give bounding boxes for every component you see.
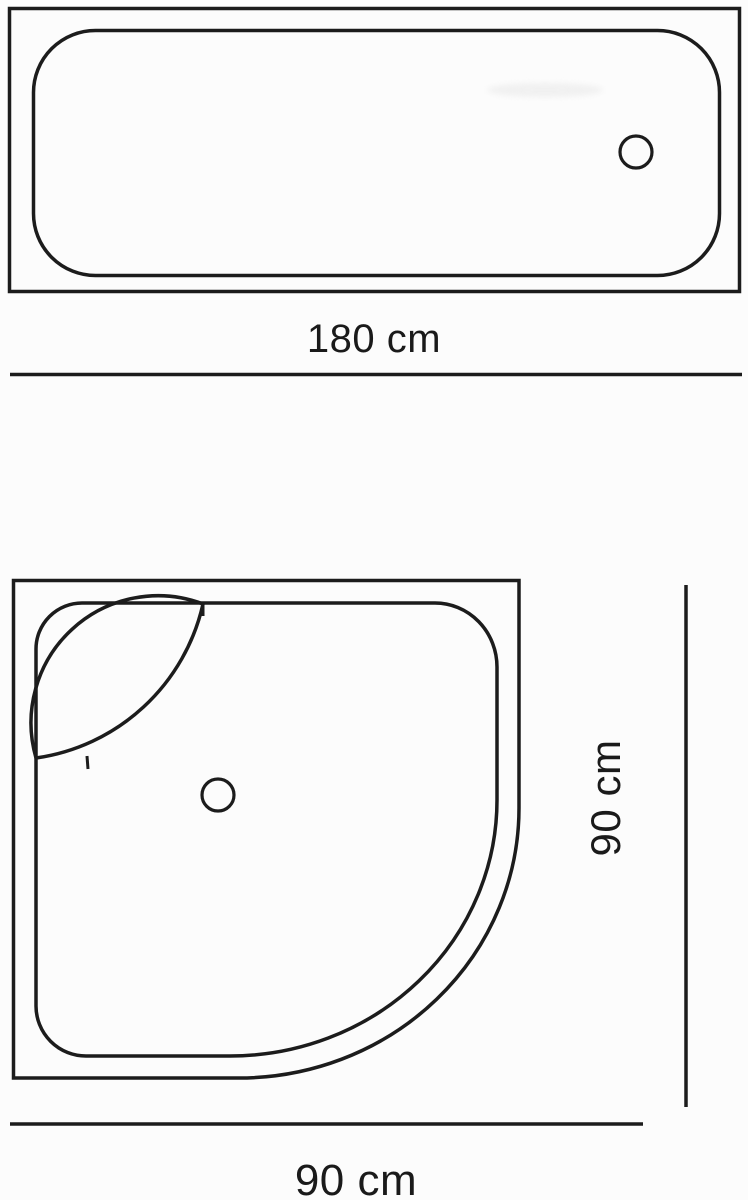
- corner-seat-outer-arc: [31, 596, 203, 758]
- photo-artifact-smudge: [487, 83, 603, 97]
- seat-edge-tick-bottom: [87, 756, 88, 769]
- bathtub-outline: [34, 31, 720, 276]
- tray-enclosure-outline: [14, 581, 520, 1079]
- tray-height-label: 90 cm: [585, 740, 627, 857]
- diagram-canvas: 180 cm 90 cm 90 cm: [0, 0, 748, 1200]
- bathtub-frame-rect: [10, 9, 740, 292]
- technical-drawing-svg: [0, 0, 748, 1200]
- tray-drain-icon: [202, 779, 234, 811]
- corner-seat-inner-arc: [36, 604, 203, 758]
- bathtub-drain-icon: [620, 136, 652, 168]
- bathtub-length-label: 180 cm: [307, 319, 441, 359]
- tray-outline: [36, 603, 497, 1056]
- tray-width-label: 90 cm: [295, 1159, 417, 1200]
